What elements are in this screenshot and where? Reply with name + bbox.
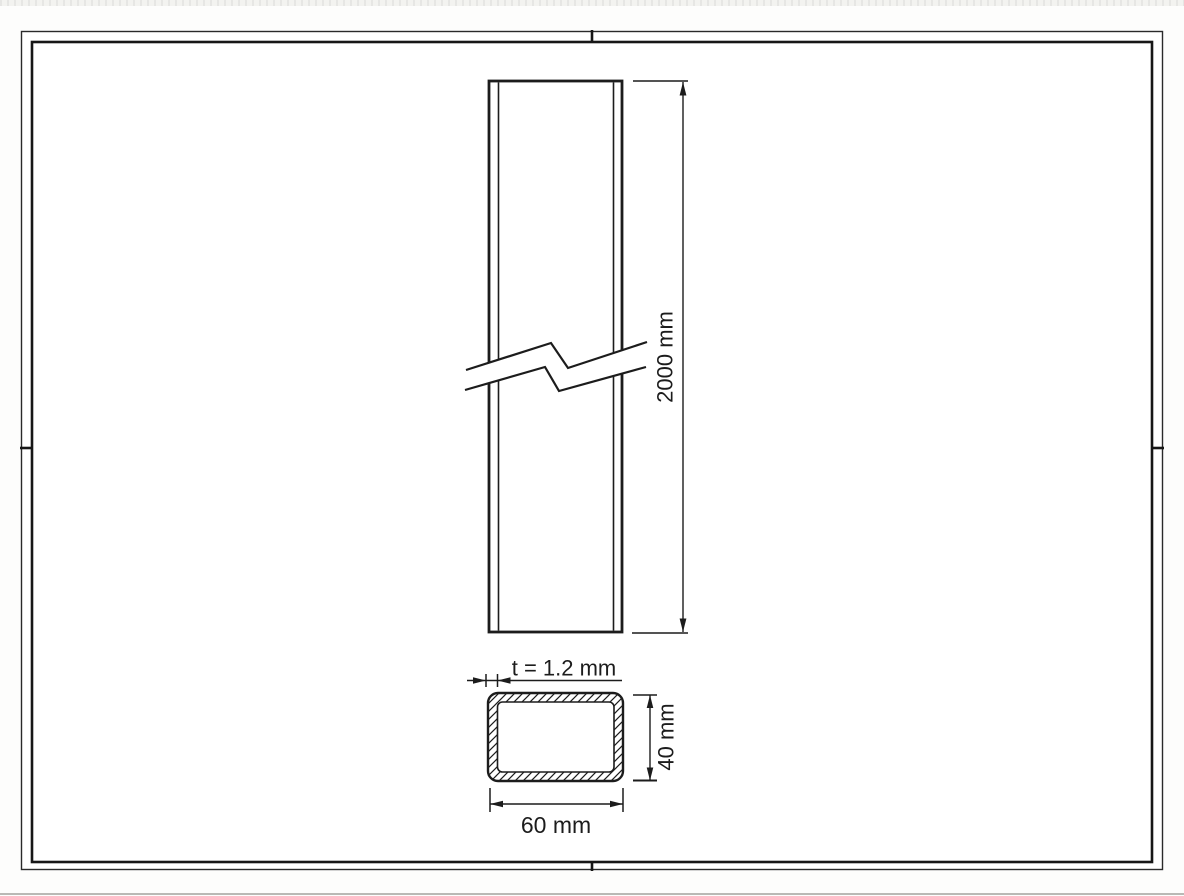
section-width-label: 60 mm <box>521 812 591 838</box>
thickness-label: t = 1.2 mm <box>512 656 617 681</box>
top-edge-artifact <box>0 0 1184 6</box>
technical-drawing-canvas: 2000 mm t = 1.2 mm 40 mm <box>0 0 1184 896</box>
elevation-view <box>465 81 647 632</box>
bottom-edge-artifact <box>0 893 1184 895</box>
section-wall-hatching <box>486 691 626 783</box>
drawing-sheet: 2000 mm t = 1.2 mm 40 mm <box>0 0 1184 896</box>
length-label: 2000 mm <box>653 311 678 403</box>
section-height-label: 40 mm <box>654 703 679 770</box>
section-view <box>486 691 626 783</box>
